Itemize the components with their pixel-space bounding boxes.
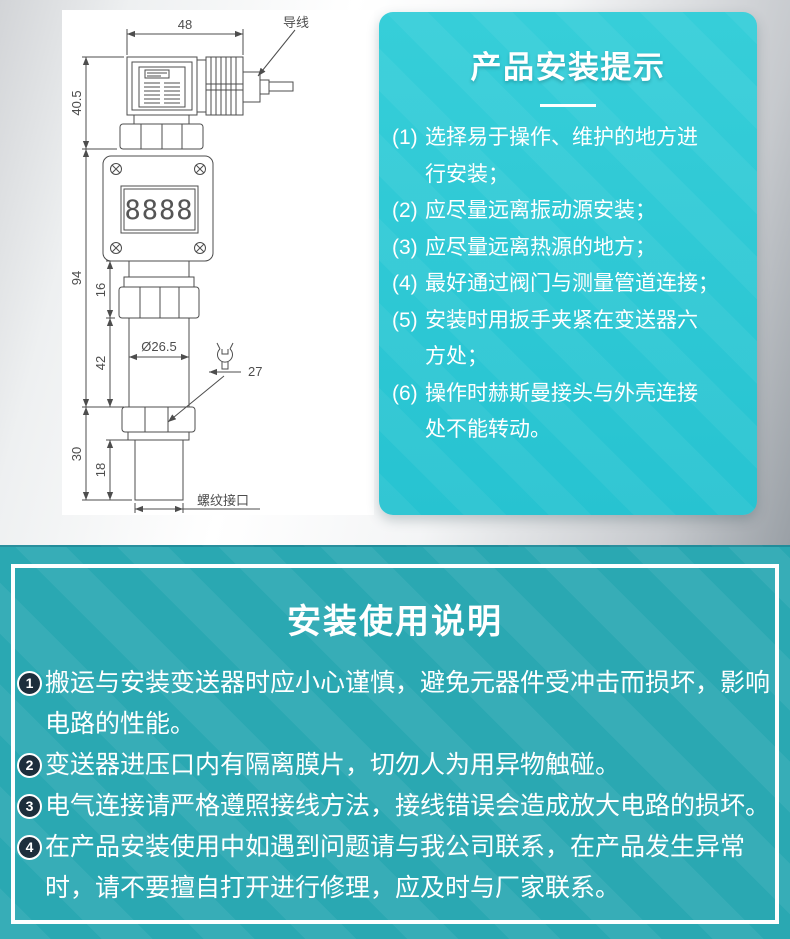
svg-text:94: 94 — [69, 271, 84, 285]
tip-number: (6) — [392, 376, 425, 449]
instructions-title: 安装使用说明 — [15, 594, 775, 643]
tip-item: (4) 最好通过阀门与测量管道连接； — [392, 266, 749, 303]
svg-text:18: 18 — [93, 463, 108, 477]
tip-text: 应尽量远离振动源安装； — [425, 193, 749, 230]
instruction-number-badge: 2 — [17, 753, 42, 778]
instructions-section: 安装使用说明 1 搬运与安装变送器时应小心谨慎，避免元器件受冲击而损坏，影响电路… — [0, 545, 790, 939]
wire-leader: 导线 — [258, 15, 309, 76]
wrench-icon — [217, 343, 233, 369]
tip-text: 操作时赫斯曼接头与外壳连接处不能转动。 — [425, 376, 749, 449]
lcd-display-value: 8888 — [124, 195, 193, 226]
upper-hex-nut-outline — [120, 115, 203, 149]
instructions-frame: 安装使用说明 1 搬运与安装变送器时应小心谨慎，避免元器件受冲击而损坏，影响电路… — [11, 564, 779, 924]
dim-thread-height: 18 — [93, 440, 132, 500]
tip-text: 安装时用扳手夹紧在变送器六方处； — [425, 303, 749, 376]
tip-text: 选择易于操作、维护的地方进行安装； — [425, 120, 749, 193]
tips-panel-title: 产品安装提示 — [379, 42, 757, 87]
connector-outline — [127, 57, 197, 115]
instruction-item: 2 变送器进压口内有隔离膜片，切勿人为用异物触碰。 — [17, 745, 771, 786]
tip-text: 应尽量远离热源的地方； — [425, 230, 749, 267]
tip-number: (2) — [392, 193, 425, 230]
dim-cylinder-height: 42 — [93, 318, 124, 407]
cable-gland-outline — [197, 57, 293, 115]
thread-port-label: 螺纹接口 — [197, 493, 249, 508]
top-section: 8888 48 — [0, 0, 790, 545]
instruction-item: 3 电气连接请严格遵照接线方法，接线错误会造成放大电路的损坏。 — [17, 786, 771, 827]
dim-lower-height: 30 — [69, 407, 132, 500]
tips-list: (1) 选择易于操作、维护的地方进行安装； (2) 应尽量远离振动源安装； (3… — [379, 120, 757, 449]
svg-text:27: 27 — [248, 364, 262, 379]
tip-number: (5) — [392, 303, 425, 376]
instructions-list: 1 搬运与安装变送器时应小心谨慎，避免元器件受冲击而损坏，影响电路的性能。 2 … — [15, 663, 775, 909]
product-install-promo-image: 8888 48 — [0, 0, 790, 939]
tip-number: (3) — [392, 230, 425, 267]
instruction-number-badge: 1 — [17, 671, 42, 696]
svg-text:48: 48 — [178, 17, 192, 32]
svg-text:Ø26.5: Ø26.5 — [141, 339, 176, 354]
tip-item: (6) 操作时赫斯曼接头与外壳连接处不能转动。 — [392, 376, 749, 449]
drawing-panel: 8888 48 — [62, 10, 374, 515]
tip-text: 最好通过阀门与测量管道连接； — [425, 266, 749, 303]
tip-item: (1) 选择易于操作、维护的地方进行安装； — [392, 120, 749, 193]
tip-item: (2) 应尽量远离振动源安装； — [392, 193, 749, 230]
instruction-text: 电气连接请严格遵照接线方法，接线错误会造成放大电路的损坏。 — [42, 786, 771, 827]
instruction-number-badge: 3 — [17, 794, 42, 819]
svg-text:16: 16 — [93, 283, 108, 297]
thread-port-leader: 螺纹接口 — [135, 493, 260, 513]
tip-number: (4) — [392, 266, 425, 303]
instruction-number-badge: 4 — [17, 835, 42, 860]
instruction-text: 变送器进压口内有隔离膜片，切勿人为用异物触碰。 — [42, 745, 771, 786]
tips-panel: 产品安装提示 (1) 选择易于操作、维护的地方进行安装； (2) 应尽量远离振动… — [379, 12, 757, 515]
svg-text:30: 30 — [69, 447, 84, 461]
title-divider — [540, 104, 596, 107]
wire-label: 导线 — [283, 15, 309, 30]
dim-wrench-size: 27 — [168, 364, 262, 422]
lower-body-outline — [119, 261, 199, 500]
dim-top-width: 48 — [127, 17, 243, 55]
svg-text:42: 42 — [93, 356, 108, 370]
tip-item: (5) 安装时用扳手夹紧在变送器六方处； — [392, 303, 749, 376]
instruction-text: 搬运与安装变送器时应小心谨慎，避免元器件受冲击而损坏，影响电路的性能。 — [42, 663, 771, 745]
instruction-text: 在产品安装使用中如遇到问题请与我公司联系，在产品发生异常时，请不要擅自打开进行修… — [42, 827, 771, 909]
instruction-item: 1 搬运与安装变送器时应小心谨慎，避免元器件受冲击而损坏，影响电路的性能。 — [17, 663, 771, 745]
dim-diameter: Ø26.5 — [129, 339, 189, 357]
pressure-transmitter-dimension-diagram: 8888 48 — [62, 10, 374, 515]
tip-item: (3) 应尽量远离热源的地方； — [392, 230, 749, 267]
instruction-item: 4 在产品安装使用中如遇到问题请与我公司联系，在产品发生异常时，请不要擅自打开进… — [17, 827, 771, 909]
dim-upper-height: 40.5 — [69, 57, 124, 149]
svg-text:40.5: 40.5 — [69, 90, 84, 115]
tip-number: (1) — [392, 120, 425, 193]
